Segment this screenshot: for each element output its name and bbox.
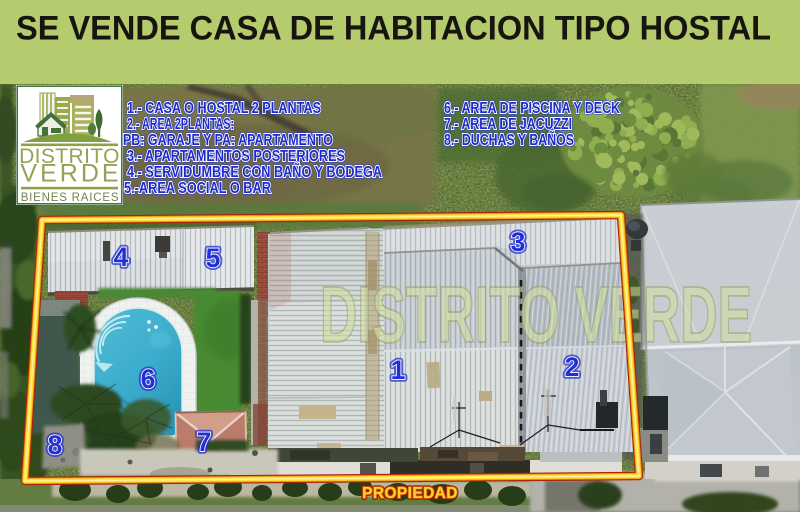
svg-text:4: 4 [114, 242, 129, 272]
svg-text:PB: GARAJE Y PA: APARTAMENTO: PB: GARAJE Y PA: APARTAMENTO [123, 132, 333, 149]
svg-text:SE VENDE CASA DE HABITACION TI: SE VENDE CASA DE HABITACION TIPO HOSTAL [16, 10, 771, 48]
svg-text:6: 6 [141, 364, 156, 394]
svg-text:5: 5 [206, 243, 221, 273]
svg-text:1: 1 [391, 355, 406, 385]
svg-text:7.- AREA DE JACUZZI: 7.- AREA DE JACUZZI [444, 116, 572, 133]
svg-text:3.- APARTAMENTOS POSTERIORES: 3.- APARTAMENTOS POSTERIORES [127, 148, 345, 165]
svg-text:BIENES RAICES: BIENES RAICES [21, 192, 120, 204]
svg-text:DISTRITO VERDE: DISTRITO VERDE [320, 270, 752, 359]
svg-text:8.- DUCHAS Y BAÑOS: 8.- DUCHAS Y BAÑOS [444, 129, 574, 149]
svg-text:PROPIEDAD: PROPIEDAD [362, 485, 458, 502]
svg-text:2: 2 [565, 352, 580, 382]
svg-text:4.- SERVIDUMBRE CON BAÑO Y BOD: 4.- SERVIDUMBRE CON BAÑO Y BODEGA [127, 161, 382, 181]
svg-text:3: 3 [511, 227, 526, 257]
svg-text:2.- AREA 2PLANTAS:: 2.- AREA 2PLANTAS: [127, 116, 234, 133]
svg-text:VERDE: VERDE [20, 160, 121, 188]
svg-text:6.- AREA DE PISCINA Y DECK: 6.- AREA DE PISCINA Y DECK [444, 100, 620, 117]
svg-text:5.-AREA SOCIAL O BAR: 5.-AREA SOCIAL O BAR [124, 180, 271, 197]
svg-text:7: 7 [197, 427, 212, 457]
svg-text:1.- CASA O HOSTAL 2 PLANTAS: 1.- CASA O HOSTAL 2 PLANTAS [127, 100, 321, 117]
svg-text:8: 8 [48, 430, 63, 460]
